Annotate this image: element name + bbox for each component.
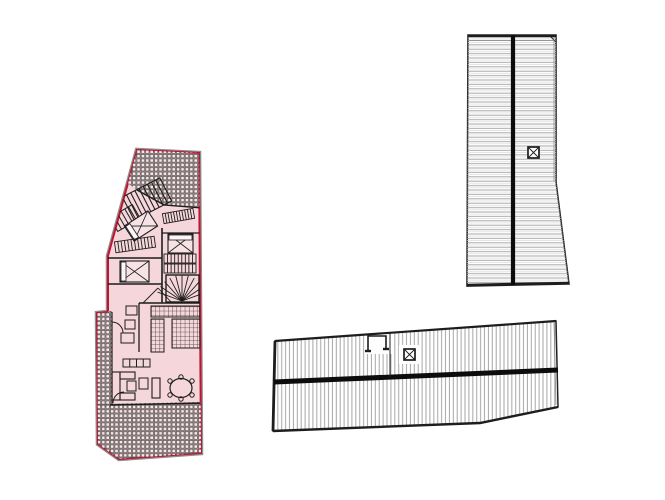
terrace-left-strip	[96, 311, 112, 407]
roof-wing-skylight	[404, 349, 415, 360]
kitchen-block-right	[172, 319, 200, 348]
roof-plan-tower	[467, 35, 569, 286]
roof-tower-skylight	[528, 147, 539, 158]
terrace-bottom	[96, 402, 202, 460]
roof-plan-wing	[273, 321, 558, 431]
roof-wing-left-edge	[273, 341, 275, 431]
architectural-drawing-canvas	[0, 0, 665, 500]
kitchen-counter-top	[151, 306, 200, 317]
floor-and-roof-plans-svg	[0, 0, 665, 500]
bed-lower	[120, 261, 149, 282]
bed-right	[168, 234, 193, 253]
kitchen-column-left	[151, 319, 164, 352]
floor-plan-highlighted	[96, 148, 206, 460]
